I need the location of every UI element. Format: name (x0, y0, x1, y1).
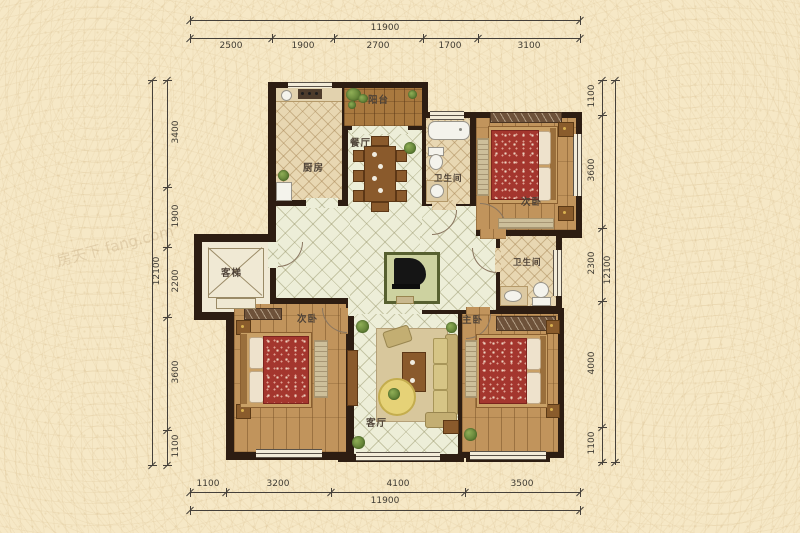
room-label-master: 主卧 (462, 312, 483, 326)
kitchen-sink (281, 90, 292, 101)
plant (404, 142, 416, 154)
grand-piano (394, 258, 426, 286)
dimension-line-bottom-segments (190, 492, 580, 493)
dimension-line-bottom-total (190, 510, 580, 511)
bench (465, 340, 477, 398)
pillow (526, 338, 541, 370)
dimension-line-right-total (615, 80, 616, 465)
balcony-plant (408, 90, 417, 99)
dim-left-seg: 2200 (171, 246, 181, 316)
room-label-bath-mid: 卫生间 (513, 256, 542, 268)
nightstand (546, 320, 560, 334)
pillow (249, 337, 264, 369)
toilet-tank (532, 297, 551, 306)
plant (352, 436, 365, 449)
bed-headboard (241, 334, 247, 404)
plant (464, 428, 477, 441)
dimension-line-top-segments (190, 38, 580, 39)
bed-blanket (479, 338, 527, 404)
toilet-bowl (533, 282, 549, 298)
room-label-bedroom-top-right: 次卧 (521, 194, 542, 208)
room-label-kitchen: 厨房 (303, 160, 324, 174)
dim-bottom-total: 11900 (190, 496, 580, 506)
master-bay-window (470, 451, 546, 460)
side-table (443, 420, 459, 434)
dim-top-seg: 1900 (268, 41, 338, 51)
dining-chair (396, 170, 407, 182)
dim-top-seg: 2500 (196, 41, 266, 51)
bedroom-bottom-left-window (256, 449, 322, 458)
dim-top-seg: 3100 (494, 41, 564, 51)
bath-mid-window (553, 250, 562, 296)
dining-chair (353, 170, 364, 182)
balcony-door-opening (352, 126, 408, 134)
dimension-line-top-total (190, 20, 580, 21)
sink-basin (430, 184, 444, 198)
plant (446, 322, 457, 333)
sink-basin (504, 290, 522, 302)
toilet-bowl (429, 154, 443, 170)
closet (490, 112, 562, 123)
dim-left-seg: 3400 (171, 97, 181, 167)
dim-right-seg: 1100 (587, 61, 597, 131)
balcony-plant (348, 101, 356, 109)
living-window (356, 452, 440, 461)
dim-left-seg: 1100 (171, 411, 181, 481)
bathtub (428, 121, 470, 140)
dining-chair (353, 190, 364, 202)
plant (356, 320, 369, 333)
dim-left-seg: 3600 (171, 337, 181, 407)
sofa-cushion (433, 364, 448, 390)
pillow (249, 371, 264, 403)
nightstand (558, 206, 574, 221)
room-label-bedroom-bottom-left: 次卧 (297, 311, 318, 325)
room-label-balcony: 阳台 (368, 92, 389, 106)
floor-plan-canvas: 房天下 fang.com 房天下 fang.com 房天下 fang.com 1… (0, 0, 800, 533)
dim-right-seg: 2300 (587, 228, 597, 298)
bedroom-top-right-window (573, 134, 582, 196)
bed-blanket (263, 336, 309, 404)
kitchen-door-opening (306, 198, 338, 208)
dim-right-total: 12100 (603, 235, 613, 305)
bed-blanket (491, 130, 539, 200)
tv-cabinet (347, 350, 358, 406)
dim-bottom-seg: 3500 (487, 479, 557, 489)
elevator-door (216, 298, 256, 309)
dining-chair (396, 190, 407, 202)
sofa-cushion (433, 338, 448, 364)
dim-top-total: 11900 (190, 23, 580, 33)
dim-right-seg: 1100 (587, 408, 597, 478)
room-label-living: 客厅 (366, 415, 387, 429)
piano-keyboard (392, 284, 420, 289)
dim-bottom-seg: 4100 (363, 479, 433, 489)
rug (477, 138, 489, 196)
entrance-door-opening (268, 242, 278, 268)
piano-bench (396, 296, 414, 304)
round-rug-motif (388, 388, 400, 400)
bedroom-top-right-door-opening (480, 229, 506, 239)
dimension-line-left-segments (167, 80, 168, 465)
rug (314, 340, 328, 398)
bath-top-window (430, 111, 464, 120)
balcony-plant (358, 94, 368, 103)
dining-chair (371, 136, 389, 146)
dim-right-seg: 4000 (587, 328, 597, 398)
pillow (526, 372, 541, 404)
room-label-bath-top: 卫生间 (434, 172, 463, 184)
room-label-dining: 餐厅 (350, 135, 371, 149)
nightstand (546, 404, 560, 418)
dining-table (364, 146, 396, 202)
dim-left-seg: 1900 (171, 181, 181, 251)
dim-bottom-seg: 1100 (173, 479, 243, 489)
plant (278, 170, 289, 181)
room-label-elevator: 客梯 (221, 265, 242, 279)
dining-chair (371, 202, 389, 212)
dim-right-seg: 3600 (587, 135, 597, 205)
nightstand (558, 122, 574, 137)
dim-top-seg: 2700 (343, 41, 413, 51)
dim-bottom-seg: 3200 (243, 479, 313, 489)
dresser (244, 308, 282, 320)
dim-left-total: 12100 (152, 236, 162, 306)
fridge (276, 182, 292, 201)
bench (498, 218, 554, 229)
dining-chair (353, 150, 364, 162)
